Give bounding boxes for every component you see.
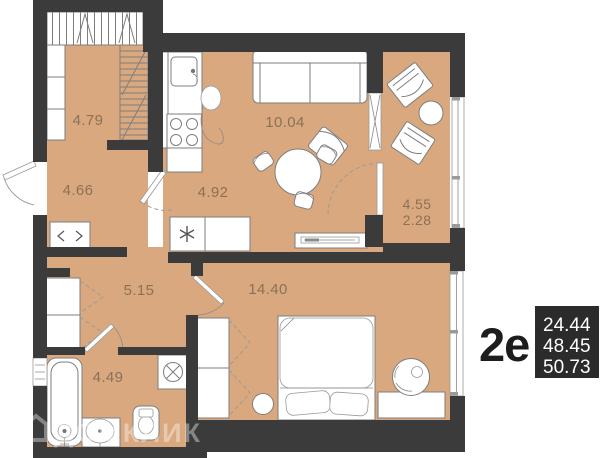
fridge-cabinet [170,217,250,251]
dining-table [275,149,321,195]
area-value-living: 24.44 [543,315,591,336]
floorplan-drawing: ДОМКЛИК 4.79 4.66 10.04 4.92 5.15 4.49 1… [0,0,600,458]
faucet-icon [191,69,195,73]
bedroom-window [450,271,463,396]
watermark-text: ДОМКЛИК [54,418,202,448]
balcony-table [419,101,443,125]
room-label-balcony-full: 4.55 [403,196,432,212]
tv-sideboard [295,233,367,248]
balcony-partition-window [369,93,381,150]
stool [253,394,274,415]
room-label-hall: 4.66 [63,182,94,199]
room-label-kitchen-living: 10.04 [265,114,305,131]
shoe-cabinet [50,222,90,250]
room-label-corridor: 5.15 [124,282,155,299]
desk-chair [393,359,430,396]
area-value-main: 48.45 [543,336,591,357]
entrance-door [3,161,36,205]
pillow [285,390,331,416]
area-value-total: 50.73 [543,357,591,378]
room-label-kitchen-zone: 4.92 [198,184,229,201]
plan-legend: 2e 24.44 48.45 50.73 [479,306,599,378]
room-label-bathroom: 4.49 [93,369,124,386]
sofa [253,50,367,103]
bathroom-vent-window [33,358,47,386]
pillow [329,392,368,417]
stove [167,114,202,148]
plan-type-label: 2e [479,318,529,371]
floorplan-page: ДОМКЛИК 4.79 4.66 10.04 4.92 5.15 4.49 1… [0,0,600,458]
room-label-bedroom: 14.40 [248,281,288,298]
bed [278,316,375,420]
balcony-window [452,97,464,228]
room-label-balcony-reduced: 2.28 [403,212,432,228]
room-label-wardrobe: 4.79 [73,112,104,129]
base-cabinet [167,148,202,172]
washing-machine [158,355,188,389]
